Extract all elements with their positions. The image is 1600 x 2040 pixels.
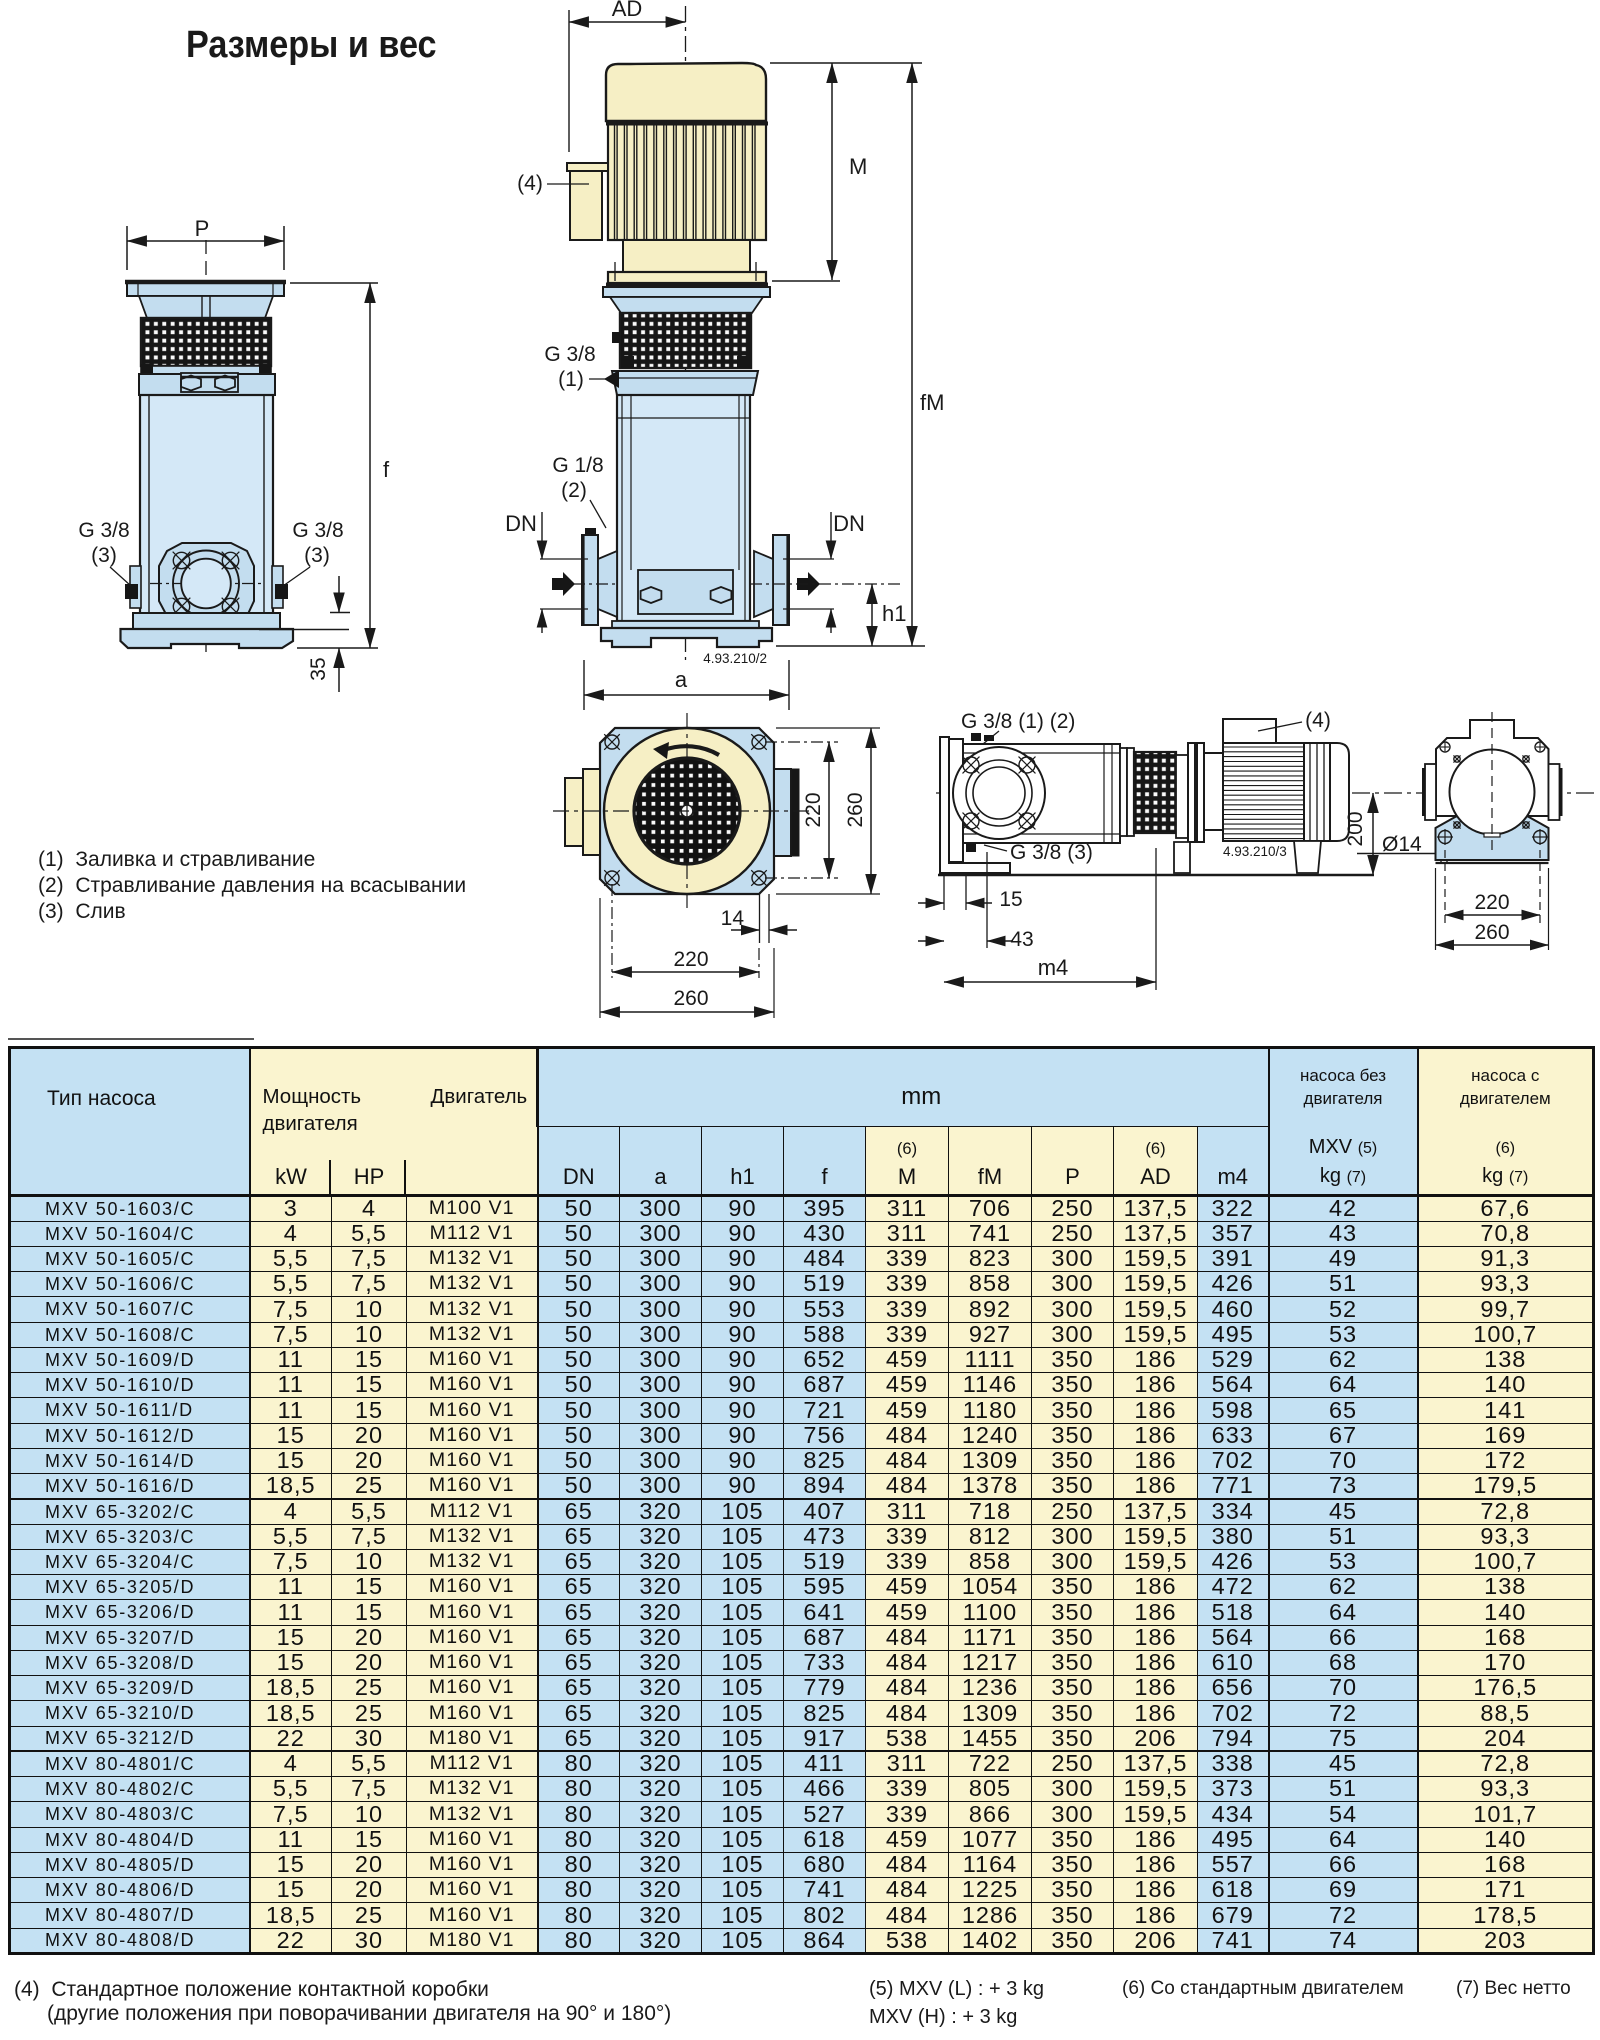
svg-text:a: a	[675, 667, 688, 692]
svg-text:h1: h1	[882, 601, 906, 626]
svg-text:G 3/8 (3): G 3/8 (3)	[1010, 841, 1093, 864]
svg-text:(2): (2)	[561, 479, 587, 502]
svg-text:260: 260	[673, 987, 708, 1010]
svg-text:DN: DN	[505, 511, 537, 536]
svg-text:220: 220	[1474, 891, 1509, 914]
svg-text:4.93.210/2: 4.93.210/2	[703, 651, 767, 666]
svg-text:G 1/8: G 1/8	[552, 454, 603, 477]
svg-text:(4): (4)	[517, 172, 543, 195]
svg-text:G 3/8: G 3/8	[292, 519, 343, 542]
svg-text:4.93.210/3: 4.93.210/3	[1223, 844, 1287, 859]
svg-text:G 3/8: G 3/8	[78, 519, 129, 542]
svg-text:G 3/8: G 3/8	[544, 343, 595, 366]
svg-text:G 3/8 (1) (2): G 3/8 (1) (2)	[961, 710, 1075, 733]
svg-text:M: M	[849, 154, 867, 179]
svg-text:f: f	[383, 457, 390, 482]
svg-text:260: 260	[844, 792, 867, 827]
svg-text:AD: AD	[612, 0, 643, 21]
svg-text:(3): (3)	[304, 544, 330, 567]
svg-text:(3): (3)	[91, 544, 117, 567]
svg-text:260: 260	[1474, 921, 1509, 944]
svg-text:(1): (1)	[558, 368, 584, 391]
svg-text:DN: DN	[833, 511, 865, 536]
svg-text:43: 43	[1010, 928, 1033, 951]
svg-text:220: 220	[673, 948, 708, 971]
svg-text:220: 220	[802, 792, 825, 827]
svg-text:m4: m4	[1038, 955, 1069, 980]
svg-text:Ø14: Ø14	[1382, 833, 1422, 856]
svg-text:P: P	[195, 216, 210, 241]
svg-text:(4): (4)	[1305, 709, 1331, 732]
svg-text:15: 15	[999, 888, 1022, 911]
svg-text:35: 35	[307, 657, 330, 680]
svg-text:200: 200	[1344, 811, 1367, 846]
svg-text:14: 14	[721, 907, 745, 930]
svg-text:fM: fM	[920, 390, 944, 415]
